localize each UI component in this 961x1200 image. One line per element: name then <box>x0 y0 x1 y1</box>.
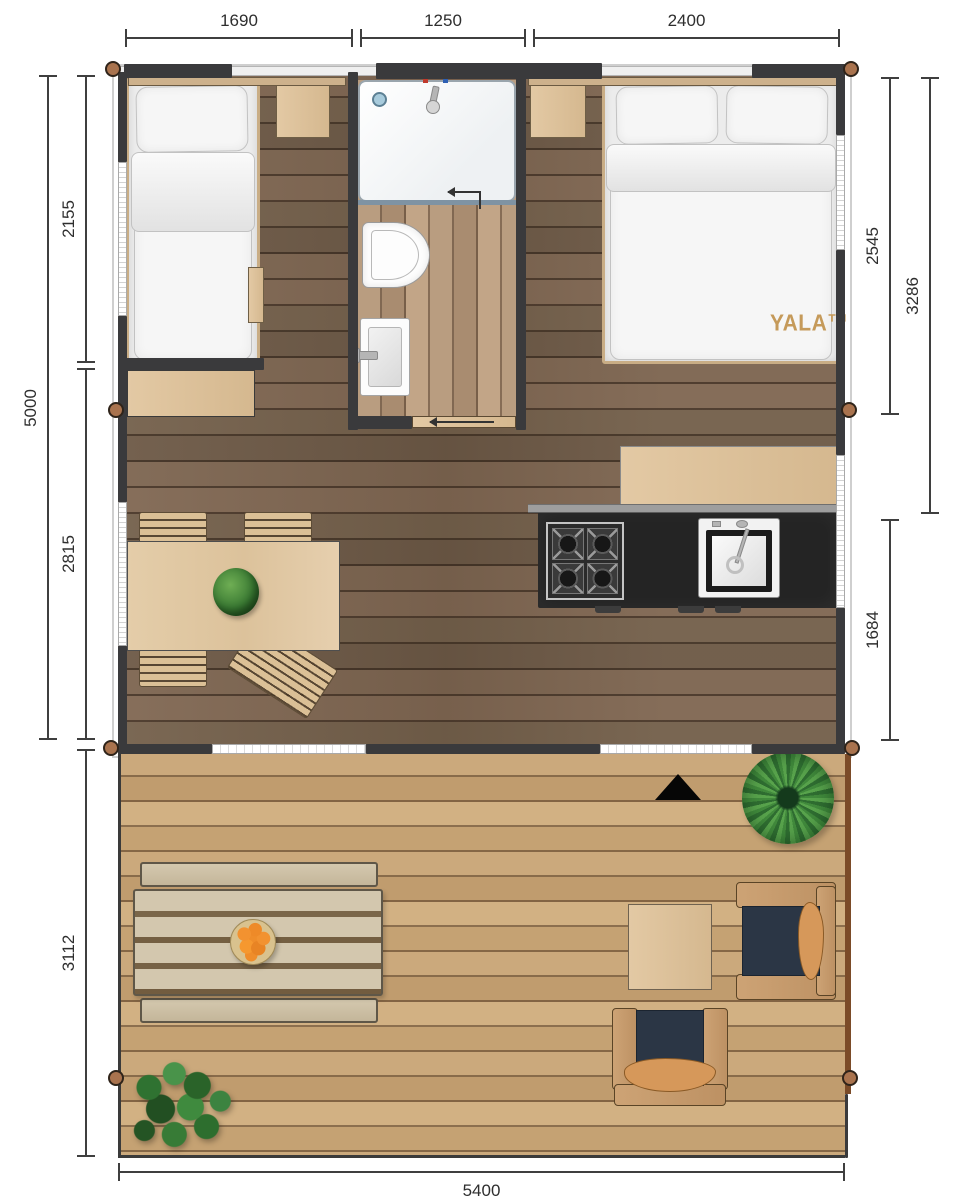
nightstand-left-bedroom <box>276 84 330 138</box>
dim-line <box>889 519 891 741</box>
tent-pole <box>105 61 121 77</box>
front-sliding-door <box>600 744 752 754</box>
bathroom-wall-bottom <box>348 416 412 429</box>
dim-tick <box>921 512 939 514</box>
dim-label: 3286 <box>903 277 923 315</box>
dim-label: 2400 <box>668 11 706 31</box>
tent-pole <box>841 402 857 418</box>
tent-pole <box>108 1070 124 1086</box>
right-wall-segment <box>836 72 845 135</box>
double-bed-pillow-left <box>616 85 719 145</box>
shower-screen <box>358 200 516 205</box>
right-wall-window <box>836 135 845 250</box>
dim-tick <box>881 519 899 521</box>
single-bed-pillow <box>135 85 248 153</box>
dim-tick <box>533 29 535 47</box>
left-wall-window <box>118 502 127 646</box>
kitchen-side-counter <box>620 446 838 506</box>
dim-tick <box>118 1163 120 1181</box>
right-wall-window <box>836 455 845 608</box>
front-wall-segment <box>752 744 845 754</box>
dim-tick <box>77 75 95 77</box>
dim-line <box>85 749 87 1157</box>
storage-bench <box>127 370 255 417</box>
shower-head <box>426 100 440 114</box>
shower-tap-hot <box>423 79 428 83</box>
table-plant <box>213 568 259 616</box>
dim-tick <box>39 738 57 740</box>
kitchen-faucet-ring <box>726 556 744 574</box>
bedroom-lintel-left <box>128 77 346 86</box>
dim-label: 1250 <box>424 11 462 31</box>
kitchen-faucet-handle <box>712 521 721 527</box>
double-bed-blanket-fold <box>606 144 836 192</box>
right-wall-segment <box>836 608 845 753</box>
top-wall-segment-right <box>752 64 845 78</box>
dim-tick <box>125 29 127 47</box>
bathroom-wall-left <box>348 72 358 430</box>
floor-plan: 1690 1250 2400 5000 2155 2815 3112 <box>0 0 961 1200</box>
dim-label: 3112 <box>59 935 79 972</box>
bedroom-foot-wall <box>118 358 264 370</box>
stove-burner <box>552 528 584 560</box>
stove-burner <box>587 563 619 595</box>
stove-burner <box>552 563 584 595</box>
dim-tick <box>351 29 353 47</box>
dim-tick <box>921 77 939 79</box>
right-wall-segment <box>836 250 845 455</box>
left-wall-segment <box>118 646 127 753</box>
kitchen-back-rail <box>528 504 845 513</box>
shower-tap-cold <box>443 79 448 83</box>
picnic-bench-top <box>140 862 378 887</box>
leafy-plant <box>126 1058 241 1156</box>
nightstand-master <box>530 84 586 138</box>
dim-line <box>85 368 87 740</box>
dim-line <box>125 37 353 39</box>
tent-pole <box>843 61 859 77</box>
picnic-bench-bottom <box>140 998 378 1023</box>
dim-line <box>85 75 87 363</box>
bedside-shelf <box>248 267 264 323</box>
top-wall-segment-left <box>124 64 232 78</box>
cabinet-handle <box>595 606 621 613</box>
front-sliding-door <box>212 744 366 754</box>
single-bed-blanket-fold <box>131 152 255 232</box>
dim-label: 1684 <box>863 611 883 649</box>
dim-tick <box>881 739 899 741</box>
dim-label: 2815 <box>59 535 79 573</box>
front-wall-segment <box>118 744 212 754</box>
entrance-arrow <box>655 774 701 800</box>
front-wall-segment <box>366 744 600 754</box>
left-wall-segment <box>118 72 127 162</box>
dim-label: 5000 <box>21 389 41 427</box>
tent-pole <box>844 740 860 756</box>
top-wall-segment-middle <box>376 63 602 79</box>
tent-pole <box>108 402 124 418</box>
dim-tick <box>524 29 526 47</box>
bathroom-wall-right <box>516 72 526 430</box>
dim-tick <box>77 361 95 363</box>
fruit-plate <box>230 919 276 965</box>
fern-plant <box>742 752 834 844</box>
dim-line <box>360 37 526 39</box>
dim-tick <box>39 75 57 77</box>
dim-tick <box>77 738 95 740</box>
dim-tick <box>838 29 840 47</box>
cabinet-handle <box>715 606 741 613</box>
dim-label: 5400 <box>463 1181 501 1200</box>
double-bed-pillow-right <box>726 85 829 145</box>
shower-door-arrow <box>448 191 480 193</box>
dim-line <box>533 37 840 39</box>
shower-door-jamb <box>479 191 481 209</box>
dim-tick <box>77 1155 95 1157</box>
shower-drain <box>372 92 387 107</box>
deck-right-edge <box>845 1094 848 1158</box>
bathroom-door-arrow <box>430 421 494 423</box>
dim-tick <box>360 29 362 47</box>
stove-burner <box>587 528 619 560</box>
dim-line <box>889 77 891 415</box>
single-bed-duvet <box>134 212 252 360</box>
dim-label: 1690 <box>220 11 258 31</box>
dim-line <box>47 75 49 740</box>
dim-line <box>118 1171 845 1173</box>
tent-pole <box>103 740 119 756</box>
dim-line <box>929 77 931 514</box>
cabinet-handle <box>678 606 704 613</box>
deck-side-table <box>628 904 712 990</box>
dim-tick <box>77 749 95 751</box>
dining-chair <box>139 649 207 687</box>
dim-tick <box>881 77 899 79</box>
dim-label: 2155 <box>59 200 79 238</box>
dim-tick <box>881 413 899 415</box>
deck-right-rail <box>845 754 851 1094</box>
dim-label: 2545 <box>863 227 883 265</box>
stove <box>546 522 624 600</box>
left-wall-window <box>118 162 127 316</box>
tent-pole <box>842 1070 858 1086</box>
dim-tick <box>843 1163 845 1181</box>
kitchen-faucet-handle <box>736 520 748 528</box>
dim-tick <box>77 368 95 370</box>
